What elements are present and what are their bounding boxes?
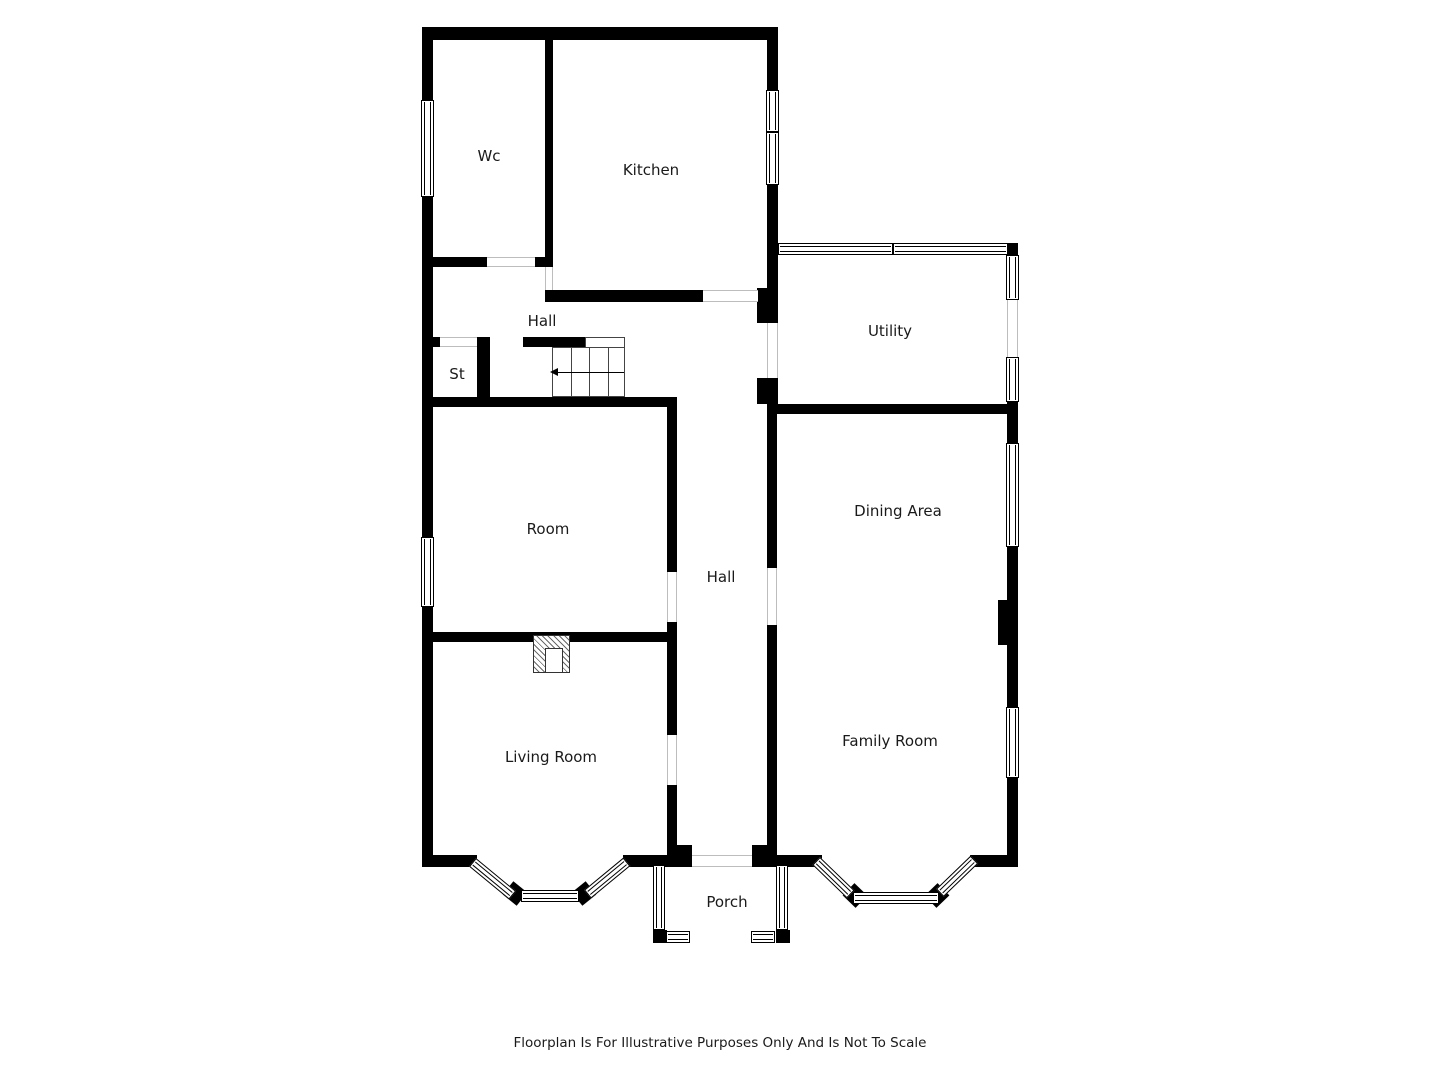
wall-kitchen-right-a — [767, 27, 778, 90]
wall-room-top — [422, 397, 677, 407]
wall-top — [422, 27, 778, 40]
window-room-left — [421, 537, 434, 607]
wall-utility-bottom — [775, 404, 1007, 414]
window-bay-right-diag-a — [812, 857, 854, 898]
floorplan: Wc Kitchen Hall St Utility Room Hall Din… — [0, 0, 1440, 1080]
window-bay-left-diag-a — [469, 858, 516, 900]
window-utility-top-1 — [778, 243, 893, 255]
wall-wc-bottom-b — [535, 257, 553, 267]
wall-dining-left — [767, 404, 777, 568]
wall-right-c — [1007, 645, 1018, 707]
room-label-st: St — [449, 365, 464, 383]
room-label-family: Family Room — [842, 732, 938, 750]
wall-st-right — [477, 337, 490, 397]
wall-bottom-d — [970, 855, 1018, 867]
wall-family-left — [767, 625, 777, 857]
wall-left-upper — [422, 27, 433, 100]
fireplace-hearth — [545, 648, 563, 673]
room-label-hall-upper: Hall — [528, 312, 557, 330]
door-opening-utility-right — [1007, 300, 1018, 357]
porch-corner-right — [776, 930, 790, 943]
wall-right-b — [1007, 547, 1018, 600]
window-family-right — [1006, 707, 1019, 778]
wall-wc-bottom-a — [433, 257, 487, 267]
window-bay-right-flat — [853, 892, 939, 904]
room-label-living: Living Room — [505, 748, 597, 766]
window-bay-left-diag-b — [584, 858, 630, 899]
wall-porch-pier-left — [667, 845, 692, 865]
wall-kitchen-left — [545, 27, 553, 267]
disclaimer-text: Floorplan Is For Illustrative Purposes O… — [0, 1035, 1440, 1051]
wall-left-lower — [422, 607, 433, 867]
window-bay-right-diag-b — [936, 856, 978, 897]
window-bay-left-flat — [521, 890, 579, 902]
wall-kitchen-right-b — [767, 185, 778, 323]
window-utility-right-1 — [1006, 255, 1019, 300]
room-label-room: Room — [527, 520, 570, 538]
porch-corner-left — [653, 930, 667, 943]
window-utility-right-2 — [1006, 357, 1019, 402]
stairs-arrow-icon — [550, 368, 558, 376]
wall-dining-pier — [757, 378, 778, 404]
window-porch-bottom-left — [666, 931, 690, 943]
wall-right-a — [1007, 414, 1018, 443]
wall-utility-top-corner — [1008, 243, 1018, 255]
window-kitchen-right-2 — [766, 132, 779, 185]
chimney-breast — [998, 600, 1018, 645]
wall-hall-left-b — [667, 622, 677, 735]
window-dining-right — [1006, 443, 1019, 547]
door-opening-wc — [487, 257, 535, 267]
fireplace — [533, 635, 570, 673]
door-opening-kitchen-corner — [545, 267, 553, 290]
window-wc-left — [421, 100, 434, 197]
door-opening-kitchen-bottom — [703, 290, 758, 302]
wall-stairs-bar — [523, 337, 585, 347]
wall-right-d — [1007, 778, 1018, 867]
window-utility-top-2 — [893, 243, 1008, 255]
wall-porch-pier-right — [752, 845, 777, 865]
window-porch-left — [653, 865, 665, 930]
window-porch-bottom-right — [751, 931, 775, 943]
window-porch-right — [776, 865, 788, 930]
room-label-kitchen: Kitchen — [623, 161, 679, 179]
door-opening-st — [440, 337, 477, 347]
wall-hall-left-a — [667, 397, 677, 572]
wall-left-middle — [422, 197, 433, 537]
door-opening-room — [667, 572, 677, 622]
room-label-utility: Utility — [868, 322, 912, 340]
wall-st-stub — [433, 337, 440, 347]
room-label-dining: Dining Area — [854, 502, 942, 520]
room-label-wc: Wc — [477, 147, 500, 165]
room-label-hall-lower: Hall — [707, 568, 736, 586]
wall-utility-bottom-corner — [1007, 400, 1018, 414]
door-opening-utility — [767, 323, 778, 378]
door-opening-front — [692, 855, 752, 867]
stairs-direction-line — [557, 372, 624, 373]
door-opening-dining — [767, 568, 777, 625]
window-kitchen-right-1 — [766, 90, 779, 132]
door-opening-living — [667, 735, 677, 785]
room-label-porch: Porch — [706, 893, 747, 911]
wall-kitchen-bottom-a — [545, 290, 703, 302]
